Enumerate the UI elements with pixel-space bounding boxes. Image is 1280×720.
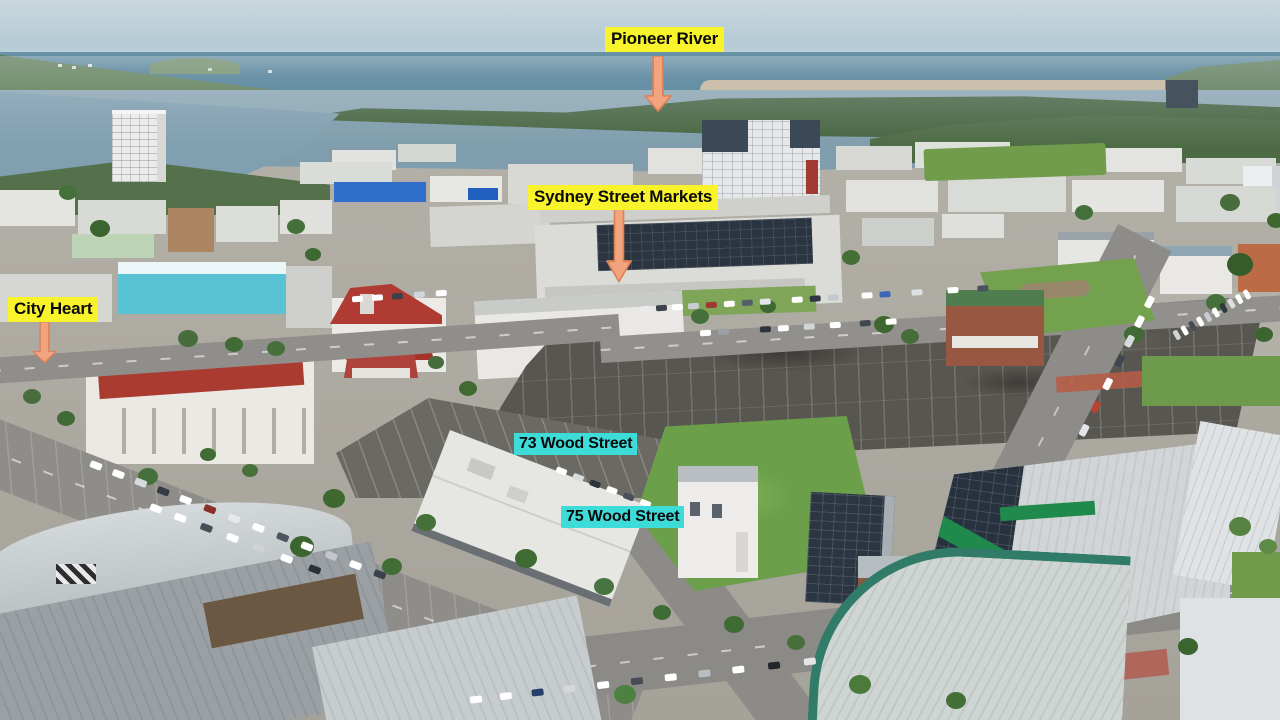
tower-red-accent bbox=[806, 160, 818, 194]
veranda bbox=[952, 336, 1038, 348]
building-roof bbox=[216, 206, 278, 242]
hall-windows bbox=[96, 408, 306, 454]
building-75-wood-street bbox=[678, 466, 758, 578]
white-tower-building bbox=[112, 110, 166, 182]
photo-scene bbox=[0, 0, 1280, 720]
light-green-roof bbox=[72, 234, 154, 258]
building-roof bbox=[0, 190, 75, 226]
building-roof bbox=[1176, 186, 1276, 222]
blue-roof-shops bbox=[334, 182, 426, 202]
building-roof bbox=[78, 200, 166, 234]
label-pioneer-river: Pioneer River bbox=[605, 27, 724, 52]
stairs bbox=[736, 532, 748, 572]
building-roof bbox=[836, 146, 912, 170]
building-roof bbox=[168, 208, 214, 252]
building-roof bbox=[1072, 180, 1164, 212]
porch bbox=[352, 368, 410, 378]
parked-cars bbox=[470, 695, 483, 703]
lawn bbox=[676, 286, 817, 317]
building-roof bbox=[846, 180, 938, 212]
label-city-heart: City Heart bbox=[8, 297, 98, 322]
building-roof bbox=[942, 214, 1004, 238]
sports-field bbox=[923, 143, 1106, 181]
rooftop-checker-detail bbox=[56, 564, 96, 584]
roof-stripe bbox=[118, 262, 286, 274]
building-roof bbox=[280, 200, 332, 234]
teal-building bbox=[118, 262, 286, 314]
label-73-wood-street: 73 Wood Street bbox=[514, 433, 637, 455]
parked-cars bbox=[640, 306, 651, 313]
building-roof bbox=[862, 218, 934, 246]
building-roof bbox=[398, 144, 456, 162]
roof-unit bbox=[506, 485, 529, 503]
parked-cars bbox=[352, 296, 363, 303]
pioneer-river-arrow-icon bbox=[644, 56, 672, 113]
aerial-photo: Pioneer River Sydney Street Markets City… bbox=[0, 0, 1280, 720]
city-heart-arrow-icon bbox=[32, 322, 57, 364]
tree-canopies bbox=[200, 448, 216, 461]
blue-sign-roof bbox=[468, 188, 498, 200]
building-roof bbox=[300, 162, 392, 184]
roof-unit bbox=[467, 458, 496, 480]
building-roof bbox=[1098, 148, 1182, 172]
label-75-wood-street: 75 Wood Street bbox=[561, 506, 684, 528]
orange-brick-building bbox=[1238, 244, 1280, 292]
brick-building-green-veranda bbox=[946, 290, 1044, 366]
white-roof bbox=[1180, 598, 1280, 720]
parked-cars bbox=[700, 330, 711, 337]
distant-dark-tower bbox=[1166, 80, 1198, 108]
sydney-street-markets-arrow-icon bbox=[606, 208, 632, 284]
grass-strip bbox=[1142, 356, 1280, 406]
label-sydney-street-markets: Sydney Street Markets bbox=[528, 185, 718, 210]
tower-dark-top bbox=[702, 120, 748, 152]
tower-dark-top bbox=[790, 120, 820, 148]
house-blue-roof bbox=[1160, 246, 1232, 294]
building-roof bbox=[286, 266, 332, 328]
window bbox=[690, 502, 700, 516]
window bbox=[712, 504, 722, 518]
